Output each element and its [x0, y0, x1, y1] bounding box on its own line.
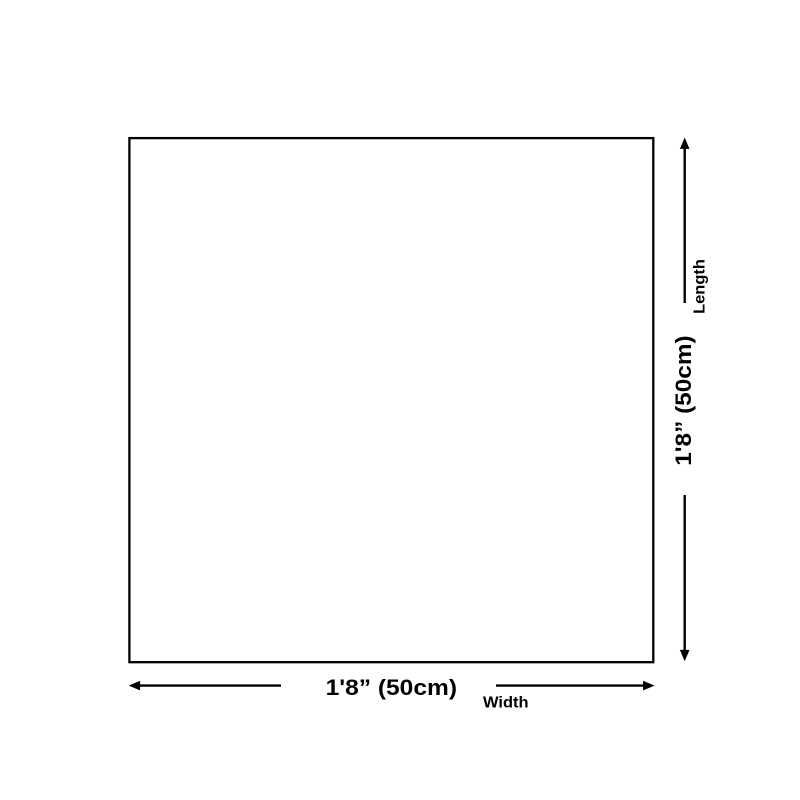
svg-text:1'8” (50cm): 1'8” (50cm) — [326, 675, 457, 700]
svg-text:Length: Length — [691, 259, 708, 314]
svg-text:1'8” (50cm): 1'8” (50cm) — [671, 335, 696, 465]
svg-text:Width: Width — [483, 695, 529, 712]
